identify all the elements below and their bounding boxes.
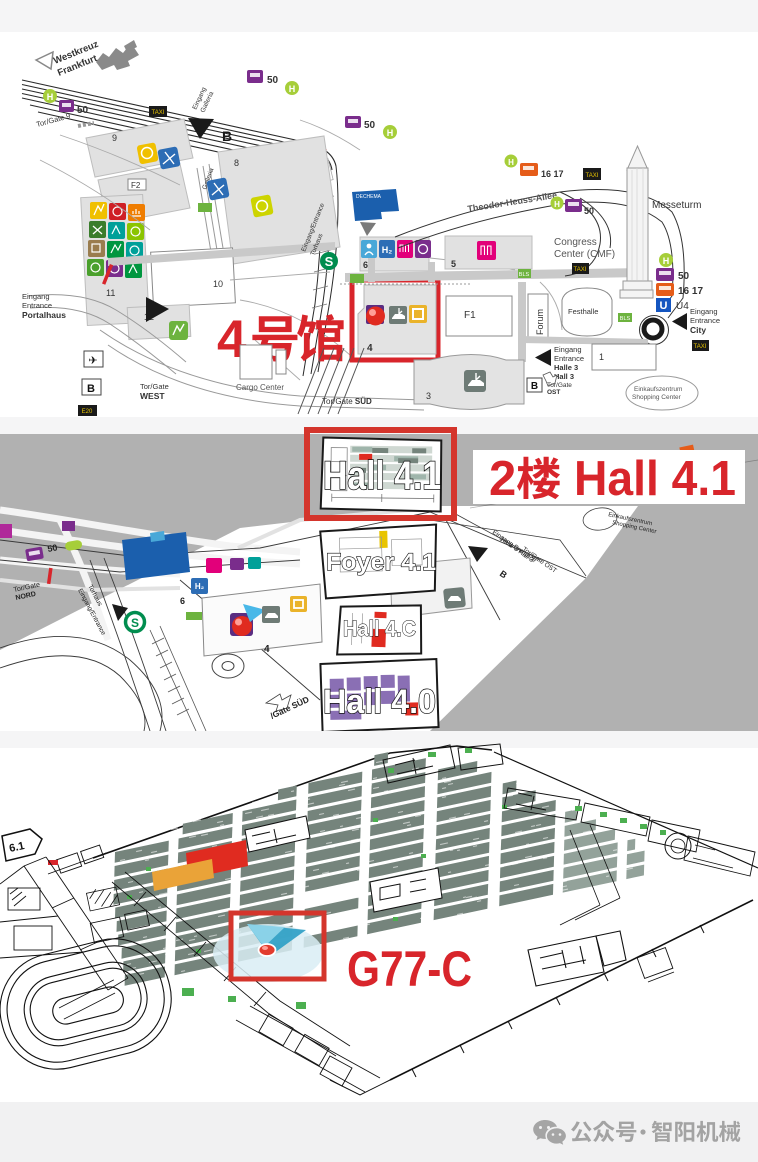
svg-text:Einkaufszentrum: Einkaufszentrum: [634, 386, 682, 393]
svg-text:H: H: [47, 92, 54, 102]
svg-text:Shopping Center: Shopping Center: [632, 394, 682, 401]
svg-text:H₂: H₂: [382, 245, 393, 255]
svg-text:Foyer 4.1: Foyer 4.1: [326, 549, 436, 576]
svg-text:6: 6: [180, 596, 185, 606]
svg-text:5: 5: [451, 259, 456, 269]
svg-text:Entrance: Entrance: [690, 316, 720, 325]
svg-text:Entrance: Entrance: [554, 354, 584, 363]
svg-text:TAXI: TAXI: [574, 267, 587, 273]
svg-text:Forum: Forum: [535, 309, 545, 335]
svg-text:4: 4: [264, 644, 270, 655]
svg-text:B: B: [531, 381, 538, 392]
svg-text:9: 9: [112, 133, 117, 143]
svg-text:Eingang: Eingang: [554, 345, 582, 354]
svg-text:Tor/Gate: Tor/Gate: [140, 382, 169, 391]
svg-text:Hall 4.0: Hall 4.0: [323, 683, 436, 721]
svg-text:H: H: [289, 84, 296, 94]
svg-text:H₂: H₂: [195, 582, 205, 591]
svg-text:8: 8: [234, 158, 239, 168]
svg-text:Center (CMF): Center (CMF): [554, 249, 615, 260]
svg-text:50: 50: [47, 542, 59, 554]
svg-text:Hall 4.C: Hall 4.C: [343, 616, 416, 641]
svg-text:Cargo Center: Cargo Center: [236, 383, 284, 392]
svg-text:H: H: [508, 158, 514, 167]
svg-text:S: S: [325, 254, 334, 269]
svg-text:H: H: [663, 256, 670, 266]
svg-text:BLS: BLS: [620, 316, 631, 322]
svg-text:6: 6: [363, 260, 368, 270]
svg-text:1: 1: [599, 352, 604, 362]
svg-text:Tor/Gate SÜD: Tor/Gate SÜD: [322, 397, 372, 406]
svg-text:50: 50: [77, 105, 89, 116]
svg-text:WEST: WEST: [140, 391, 165, 401]
svg-text:10: 10: [213, 279, 223, 289]
svg-text:16 17: 16 17: [678, 286, 703, 297]
svg-text:Tor/Gate: Tor/Gate: [547, 382, 572, 389]
svg-text:E20: E20: [82, 409, 93, 415]
svg-text:Entrance: Entrance: [22, 301, 52, 310]
svg-text:Eingang: Eingang: [690, 307, 718, 316]
svg-text:DECHEMA: DECHEMA: [356, 194, 382, 200]
svg-text:OST: OST: [547, 389, 560, 396]
svg-text:G77-C: G77-C: [347, 941, 472, 997]
svg-text:16 17: 16 17: [541, 169, 564, 179]
svg-text:50: 50: [584, 206, 594, 216]
svg-text:TAXI: TAXI: [694, 344, 707, 350]
svg-text:Congress: Congress: [554, 237, 597, 248]
svg-text:U4: U4: [676, 301, 689, 312]
svg-text:50: 50: [678, 271, 690, 282]
svg-text:3: 3: [426, 391, 431, 401]
svg-text:Hall 4.1: Hall 4.1: [323, 454, 441, 498]
svg-text:B: B: [87, 383, 95, 395]
svg-text:11: 11: [106, 288, 115, 298]
svg-text:H: H: [387, 128, 394, 138]
svg-text:U: U: [660, 300, 668, 312]
svg-text:Hall 4.1: Hall 4.1: [574, 452, 736, 506]
svg-text:B: B: [222, 128, 232, 144]
svg-text:50: 50: [267, 75, 279, 86]
svg-text:✈: ✈: [88, 355, 97, 367]
svg-text:2: 2: [489, 452, 515, 506]
svg-text:TAXI: TAXI: [152, 110, 165, 116]
svg-text:City: City: [690, 325, 706, 335]
svg-text:BLS: BLS: [519, 272, 530, 278]
svg-text:4: 4: [367, 343, 373, 354]
svg-text:Messeturm: Messeturm: [652, 200, 701, 211]
svg-text:S: S: [131, 616, 139, 630]
svg-text:H: H: [554, 200, 560, 209]
svg-text:Festhalle: Festhalle: [568, 307, 598, 316]
svg-text:F1: F1: [464, 310, 476, 321]
svg-text:Halle 3: Halle 3: [554, 363, 578, 372]
svg-text:Portalhaus: Portalhaus: [22, 310, 66, 320]
svg-text:F2: F2: [131, 181, 141, 190]
svg-text:Eingang: Eingang: [22, 292, 50, 301]
svg-text:50: 50: [364, 120, 376, 131]
svg-text:TAXI: TAXI: [586, 173, 599, 179]
